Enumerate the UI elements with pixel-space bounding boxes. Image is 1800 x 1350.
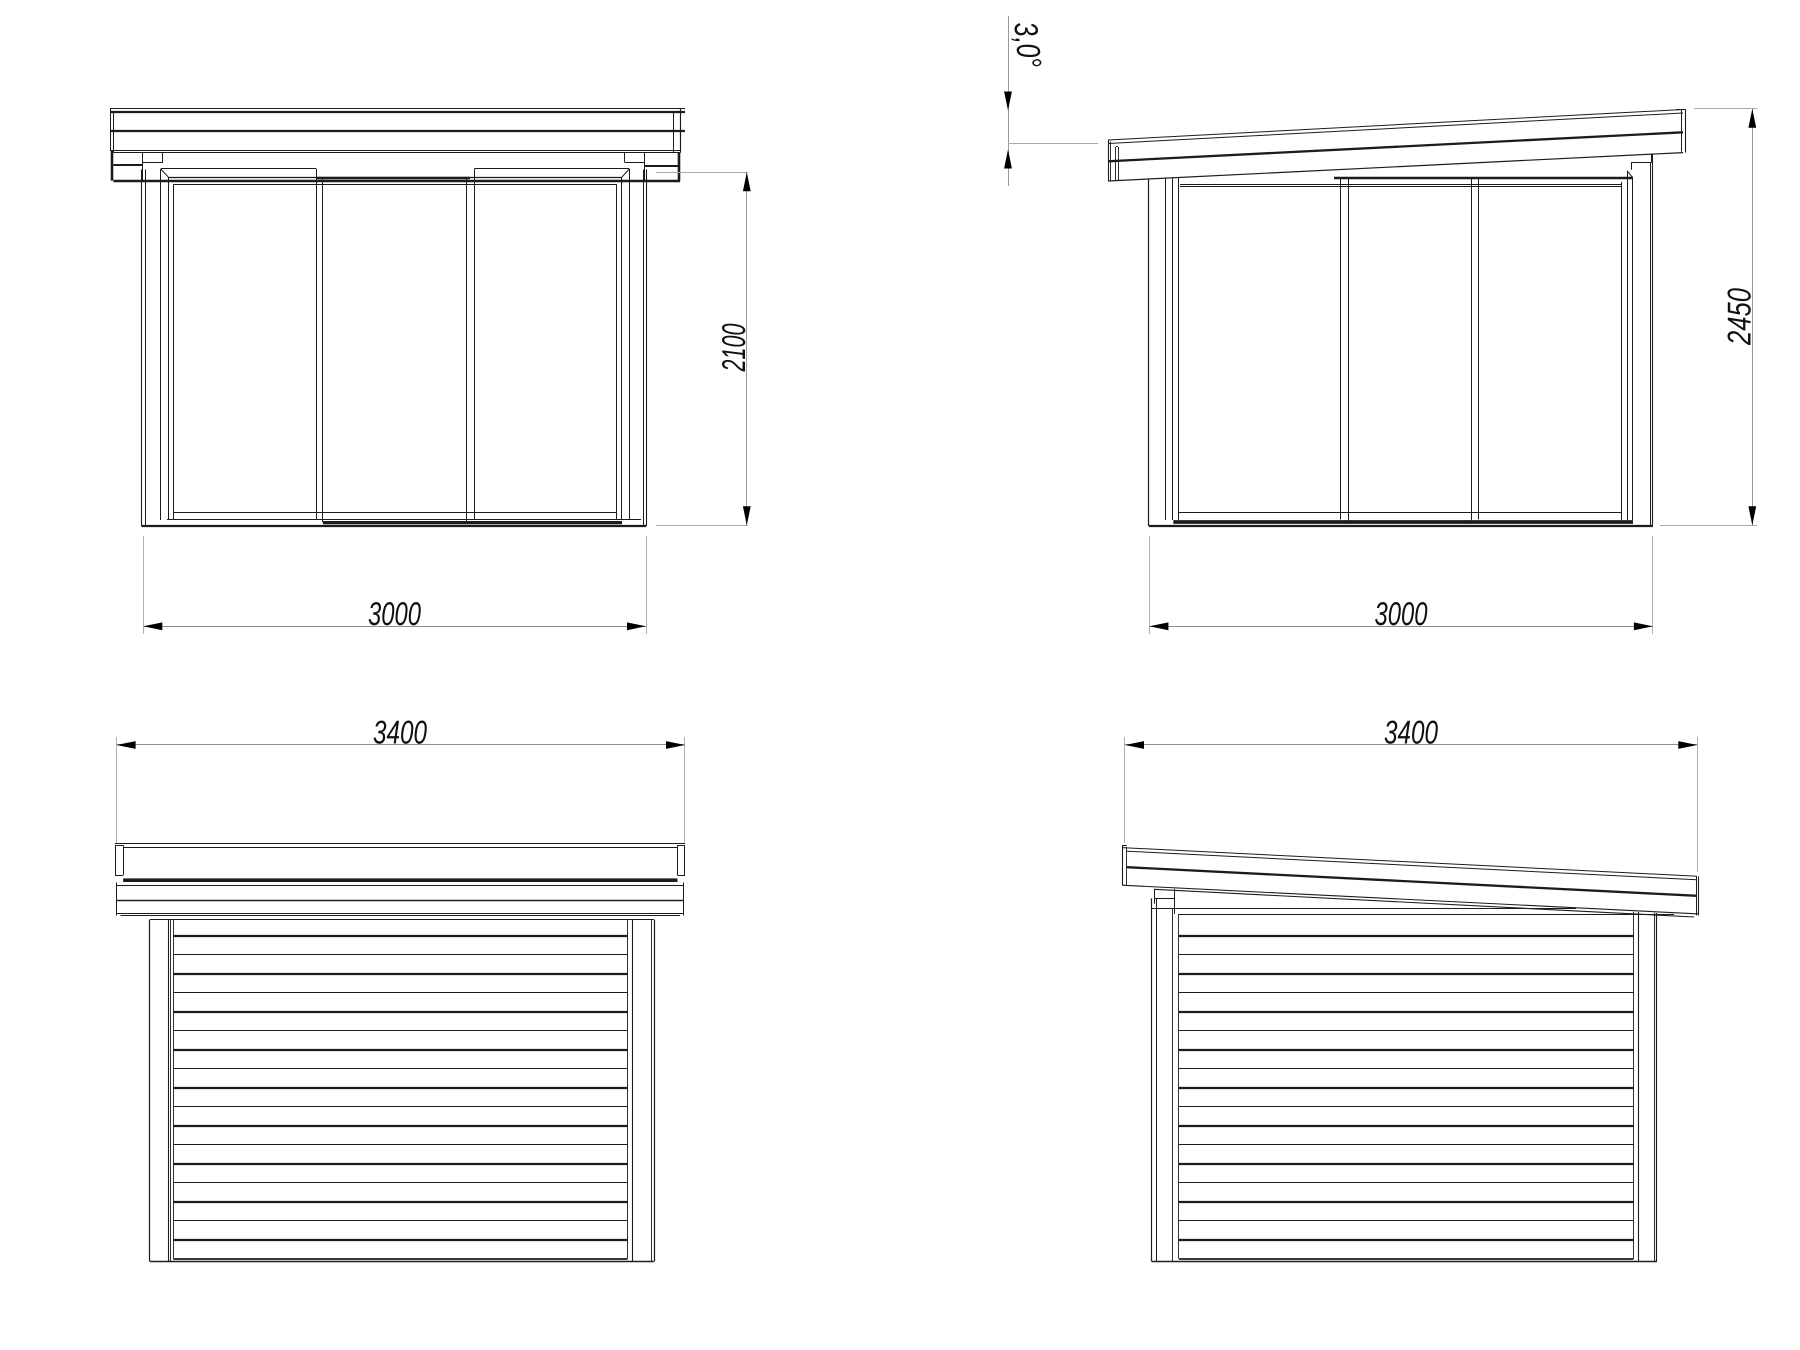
svg-text:2450: 2450 — [1721, 288, 1758, 346]
svg-text:3000: 3000 — [368, 595, 421, 632]
svg-text:2100: 2100 — [715, 323, 752, 372]
svg-text:3,0°: 3,0° — [1007, 20, 1049, 70]
svg-text:3400: 3400 — [373, 714, 427, 751]
svg-text:3000: 3000 — [1375, 595, 1428, 632]
svg-text:3400: 3400 — [1384, 714, 1438, 751]
